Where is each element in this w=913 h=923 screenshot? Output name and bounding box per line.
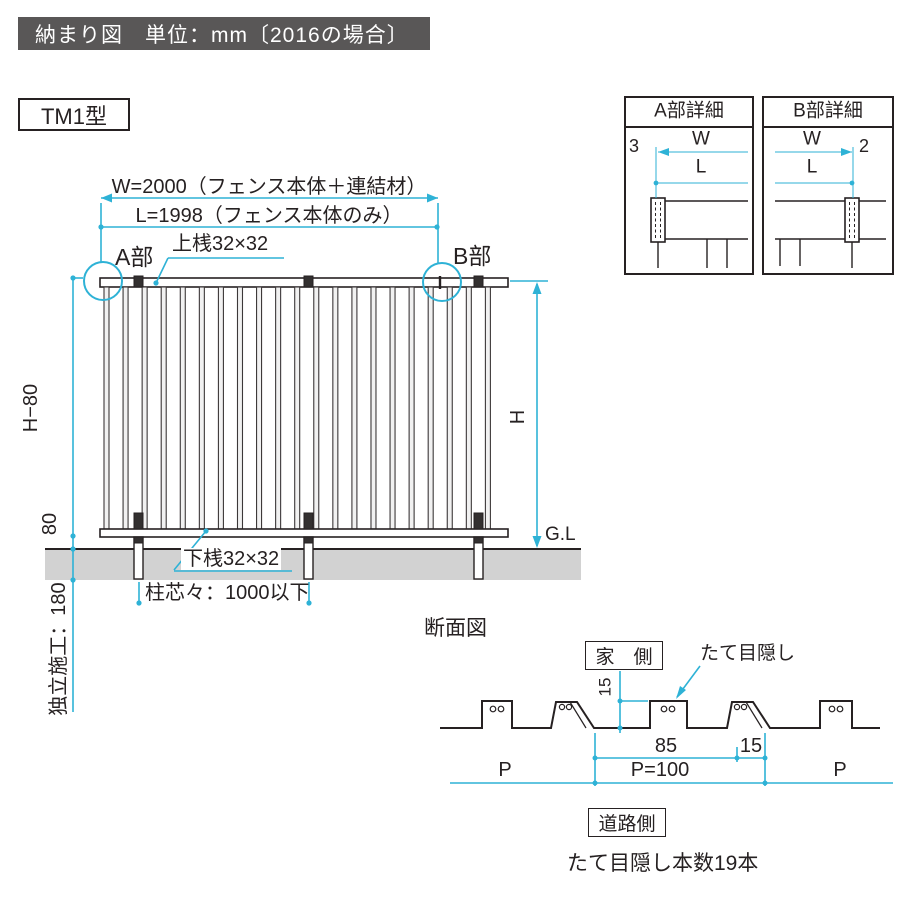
part-b-label: B部 xyxy=(453,244,491,269)
post-pitch-label: 柱芯々：1000以下 xyxy=(145,582,310,604)
fence-post-part xyxy=(304,276,313,287)
fence-post-part xyxy=(134,537,143,543)
detail-a-offset: 3 xyxy=(629,137,639,157)
model-label-box: TM1型 xyxy=(18,98,130,131)
dim-l-label: L=1998（フェンス本体のみ） xyxy=(136,205,403,227)
bottom-rail xyxy=(100,529,508,537)
fence-slat xyxy=(237,287,242,529)
fence-slat xyxy=(257,287,262,529)
slat-profile xyxy=(440,701,880,728)
drawing-page: 納まり図 単位：mm〔2016の場合〕 TM1型 W=2000（フェンス本体＋連… xyxy=(0,0,913,923)
road-side-box: 道路側 xyxy=(588,808,666,837)
page-header: 納まり図 単位：mm〔2016の場合〕 xyxy=(18,17,430,50)
fence-slat xyxy=(276,287,281,529)
detail-b-box xyxy=(763,97,893,274)
section-p-mid: P=100 xyxy=(631,759,689,781)
section-dim-15v: 15 xyxy=(597,678,616,697)
fence-post-part xyxy=(474,276,483,287)
detail-b-w: W xyxy=(803,130,821,151)
drawing-canvas xyxy=(0,0,913,923)
model-label: TM1型 xyxy=(41,99,107,131)
fence-post-part xyxy=(474,513,483,529)
dim-w-arrow-right xyxy=(427,194,438,203)
section-title: 断面図 xyxy=(424,617,487,640)
road-side-label: 道路側 xyxy=(598,809,655,836)
section-p-right: P xyxy=(833,759,846,781)
cross-section xyxy=(440,701,880,728)
house-side-box: 家 側 xyxy=(585,641,663,670)
fence-slat xyxy=(180,287,185,529)
clip-glyphs xyxy=(490,704,843,711)
detail-b-offset: 2 xyxy=(859,137,869,157)
fence-slat xyxy=(485,287,490,529)
ground-level-label: G.L xyxy=(545,525,576,546)
dim-w-arrow-left xyxy=(101,194,112,203)
fence-slat xyxy=(123,287,128,529)
bottom-rail-label: 下桟32×32 xyxy=(181,548,281,570)
slat-leader-label: たて目隠し xyxy=(700,644,795,665)
fence-post-part xyxy=(304,513,313,529)
fence-slat xyxy=(390,287,395,529)
embedment-label: 独立施工：180 xyxy=(48,582,70,715)
dim-h-label: H xyxy=(507,410,529,424)
fence-slat xyxy=(161,287,166,529)
detail-b-title: B部詳細 xyxy=(793,102,863,123)
fence-slat xyxy=(218,287,223,529)
fence-slat xyxy=(295,287,300,529)
fence-slat xyxy=(409,287,414,529)
section-p-left: P xyxy=(498,759,511,781)
fence-slat xyxy=(314,287,319,529)
fence-post-part xyxy=(134,513,143,529)
section-dim-85: 85 xyxy=(655,735,677,757)
left-dim-line xyxy=(70,275,83,712)
fence-slats xyxy=(104,287,490,529)
detail-a-box xyxy=(625,97,753,274)
fence-post-part xyxy=(474,537,483,543)
fence-slat xyxy=(428,287,433,529)
detail-a-l: L xyxy=(696,158,707,179)
part-a-label: A部 xyxy=(115,245,153,270)
dim-w-label: W=2000（フェンス本体＋連結材） xyxy=(112,176,427,198)
detail-a-w: W xyxy=(692,130,710,151)
house-side-label: 家 側 xyxy=(595,642,652,669)
fence-slat xyxy=(447,287,452,529)
fence-slat xyxy=(142,287,147,529)
fence-post-part xyxy=(304,537,313,543)
fence-elevation xyxy=(45,276,581,580)
detail-b-l: L xyxy=(807,158,818,179)
fence-post-part xyxy=(134,276,143,287)
fence-slat xyxy=(104,287,109,529)
fence-slat xyxy=(352,287,357,529)
fence-slat xyxy=(333,287,338,529)
slat-count-note: たて目隠し本数19本 xyxy=(567,852,758,875)
fence-slat xyxy=(466,287,471,529)
dim-80-label: 80 xyxy=(39,513,61,535)
fence-slat xyxy=(371,287,376,529)
dim-h80-label: H−80 xyxy=(20,384,42,432)
top-rail-label: 上桟32×32 xyxy=(172,233,268,255)
section-dim-15h: 15 xyxy=(740,735,762,757)
detail-a-title: A部詳細 xyxy=(654,102,724,123)
page-title: 納まり図 単位：mm〔2016の場合〕 xyxy=(35,19,409,49)
fence-slat xyxy=(199,287,204,529)
